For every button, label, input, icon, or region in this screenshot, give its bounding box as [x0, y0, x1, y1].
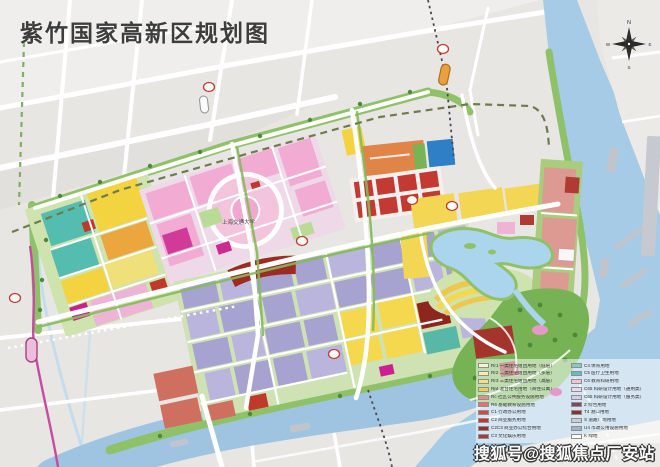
- legend-label: C1 行政办公用地: [491, 410, 526, 415]
- legend-swatch: [571, 410, 582, 415]
- legend-swatch: [571, 379, 582, 384]
- compass-s: S: [627, 65, 630, 70]
- legend-swatch: [478, 371, 489, 376]
- legend-label: Rr1 一类住宅组团用地（低层）: [491, 364, 555, 369]
- legend-swatch: [571, 387, 582, 392]
- legend-item: Rr3 三类住宅组团用地（高层）: [478, 378, 567, 386]
- compass-n: N: [627, 20, 631, 26]
- legend-swatch: [478, 395, 489, 400]
- legend-label: C6 教育科研用地: [584, 379, 619, 384]
- metro-station-capsule: [26, 338, 37, 362]
- legend-swatch: [478, 402, 489, 407]
- legend-swatch: [478, 434, 489, 439]
- legend-item: Rr2 二类住宅组团用地（多层）: [478, 370, 567, 378]
- legend-swatch: [478, 426, 489, 431]
- legend-swatch: [571, 434, 582, 439]
- legend-item: R6 基础教育设施用地: [478, 401, 567, 409]
- legend-item: S 道路广场用地: [571, 417, 660, 425]
- legend-label: C65 科研设计用地（服务类）: [584, 395, 644, 400]
- legend-item: C4 体育用地: [571, 362, 660, 370]
- legend-label: R6 基础教育设施用地: [491, 403, 535, 408]
- compass-e: E: [648, 42, 651, 47]
- legend-item: C2 商业服务用地: [478, 417, 567, 425]
- legend-label: Rr3 三类住宅组团用地（高层）: [491, 379, 555, 384]
- legend-swatch: [571, 363, 582, 368]
- planning-map-screenshot: 上海交通大学 N E S W 紫竹国家高新区规划图 Rr1 一类住宅组团用地（低…: [0, 0, 660, 467]
- legend-label: C4 体育用地: [584, 364, 610, 369]
- university-label: 上海交通大学: [222, 218, 256, 226]
- station-capsule-white: [199, 96, 209, 114]
- legend-label: C2C3 商业办公综合用地: [491, 426, 541, 431]
- legend-item: Z 综合用地: [571, 401, 660, 409]
- legend-swatch: [478, 418, 489, 423]
- legend-item: T4 港口用地: [571, 409, 660, 417]
- legend-item: C2C3 商业办公综合用地: [478, 424, 567, 432]
- legend-label: S 道路广场用地: [584, 418, 616, 423]
- legend-label: C3 文化娱乐用地: [491, 434, 526, 439]
- map-legend: Rr1 一类住宅组团用地（低层）Rr2 二类住宅组团用地（多层）Rr3 三类住宅…: [476, 359, 660, 443]
- legend-column-right: C4 体育用地C5 医疗卫生用地C6 教育科研用地C65 科研设计用地（通用类）…: [571, 362, 660, 440]
- legend-item: K 绿地: [571, 432, 660, 440]
- legend-swatch: [478, 410, 489, 415]
- legend-label: C5 医疗卫生用地: [584, 371, 619, 376]
- legend-item: Rr1 一类住宅组团用地（低层）: [478, 362, 567, 370]
- watermark: 搜狐号@搜狐焦点厂安站: [474, 440, 655, 464]
- legend-label: C65 科研设计用地（通用类）: [584, 387, 644, 392]
- legend-item: C65 科研设计用地（服务类）: [571, 393, 660, 401]
- legend-label: Rr2 二类住宅组团用地（多层）: [491, 371, 555, 376]
- legend-column-left: Rr1 一类住宅组团用地（低层）Rr2 二类住宅组团用地（多层）Rr3 三类住宅…: [478, 362, 567, 440]
- legend-swatch: [571, 426, 582, 431]
- legend-label: Rc 社区公共服务设施用地: [491, 395, 544, 400]
- legend-swatch: [478, 379, 489, 384]
- legend-swatch: [571, 418, 582, 423]
- legend-label: C2 商业服务用地: [491, 418, 526, 423]
- legend-swatch: [571, 395, 582, 400]
- legend-label: U4 市政公用设施用地: [584, 426, 628, 431]
- legend-item: Rc 社区公共服务设施用地: [478, 393, 567, 401]
- legend-item: C65 科研设计用地（通用类）: [571, 385, 660, 393]
- legend-item: C1 行政办公用地: [478, 409, 567, 417]
- legend-swatch: [478, 387, 489, 392]
- legend-item: C5 医疗卫生用地: [571, 370, 660, 378]
- legend-swatch: [571, 371, 582, 376]
- legend-label: T4 港口用地: [584, 410, 609, 415]
- legend-item: Rr4 混合住宅用地（商住公寓）: [478, 385, 567, 393]
- legend-swatch: [478, 363, 489, 368]
- legend-label: Rr4 混合住宅用地（商住公寓）: [491, 387, 555, 392]
- page-title: 紫竹国家高新区规划图: [20, 14, 270, 48]
- legend-swatch: [571, 402, 582, 407]
- legend-label: K 绿地: [584, 434, 598, 439]
- legend-item: C3 文化娱乐用地: [478, 432, 567, 440]
- legend-item: C6 教育科研用地: [571, 378, 660, 386]
- legend-item: U4 市政公用设施用地: [571, 424, 660, 432]
- legend-label: Z 综合用地: [584, 403, 606, 408]
